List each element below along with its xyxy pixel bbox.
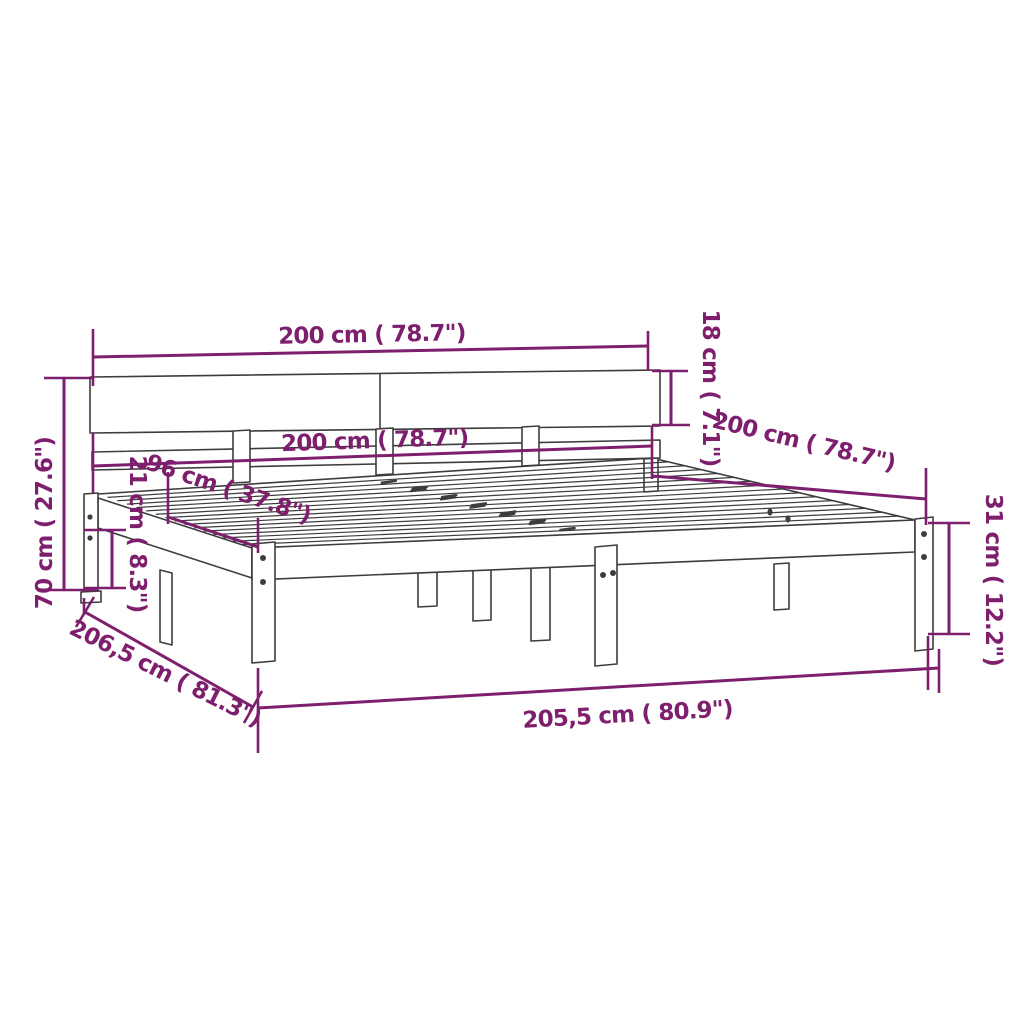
back-left-post xyxy=(81,493,101,603)
dimension-label-headboard-board-height: 18 cm ( 7.1") xyxy=(697,310,723,467)
headboard-top-board xyxy=(90,370,660,433)
deck-edge-screws xyxy=(767,508,790,522)
front-left-leg xyxy=(252,542,275,663)
dimension-headboard-board-height: 18 cm ( 7.1") xyxy=(652,310,723,467)
front-rail xyxy=(252,520,915,580)
center-front-leg xyxy=(595,545,617,666)
front-right-leg xyxy=(915,517,933,651)
headboard-batten-right xyxy=(522,426,539,466)
dimension-label-under-frame-clearance: 21 cm ( 8.3") xyxy=(124,456,150,613)
dimension-label-total-height: 70 cm ( 27.6") xyxy=(32,437,58,609)
diagram-canvas: 200 cm ( 78.7") 18 cm ( 7.1") 200 cm ( 7… xyxy=(0,0,1024,1024)
left-middle-leg xyxy=(160,570,172,645)
dimension-label-frame-side-height: 31 cm ( 12.2") xyxy=(980,494,1006,666)
dimension-label-bed-depth: 200 cm ( 78.7") xyxy=(709,408,897,477)
headboard-batten-left xyxy=(233,430,250,483)
dimension-label-headboard-width: 200 cm ( 78.7") xyxy=(278,320,466,350)
bed-frame-dimension-diagram: 200 cm ( 78.7") 18 cm ( 7.1") 200 cm ( 7… xyxy=(0,0,1024,1024)
dimension-label-frame-length: 205,5 cm ( 80.9") xyxy=(522,696,734,734)
